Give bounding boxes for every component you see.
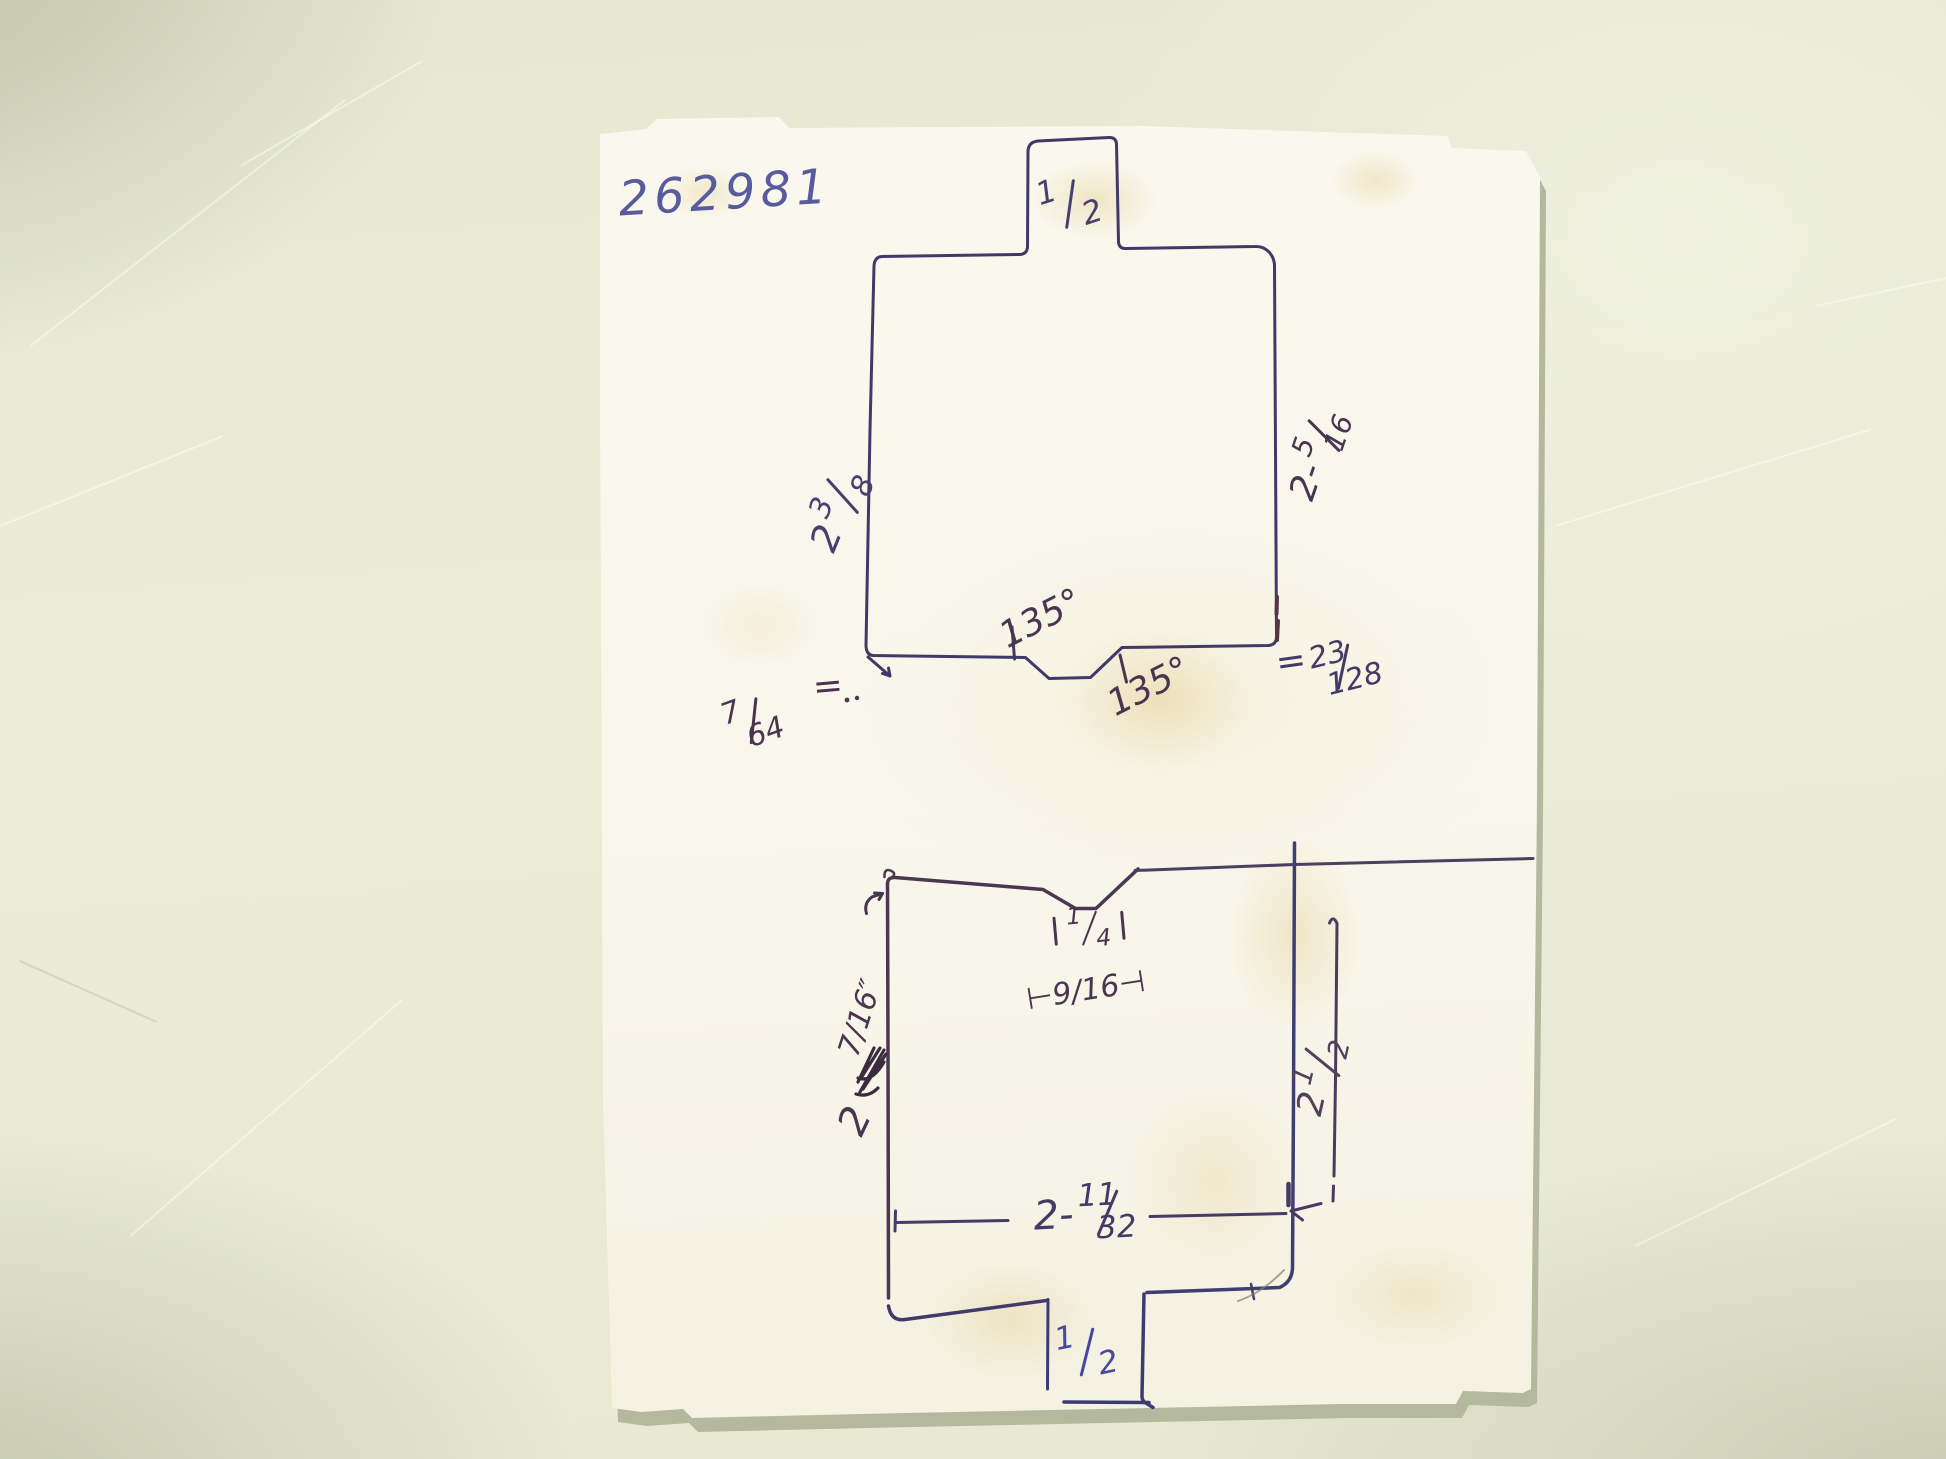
bottom-tab-right-side [1142, 1294, 1153, 1408]
right-equals-sign: = [1274, 642, 1309, 682]
bottom-tab-left-side [1048, 1300, 1049, 1390]
bottom-width-dimension: 2- 1132 [1032, 1184, 1138, 1243]
photo-of-hand-drawn-template-sketch: 262981 12 2 38 2- 516 135° 135° 764 = = … [0, 0, 1946, 1459]
right-gap-dimension: 23128 [1307, 633, 1386, 699]
bottom-edge-tick [1251, 1284, 1254, 1299]
width-dimension-arrow [1291, 1204, 1321, 1221]
left-approx-sign: = [811, 668, 844, 706]
ink-dot [845, 698, 850, 703]
pencil-curve [1238, 1270, 1284, 1301]
part-number: 262981 [617, 163, 833, 224]
corner-leader-arrow [866, 893, 883, 914]
notch-flat-dimension: 14 [1047, 904, 1131, 951]
bottom-shape-bottom-left [889, 1301, 1047, 1320]
ink-dot [855, 696, 859, 700]
bottom-tab-dimension: 12 [1053, 1320, 1121, 1385]
bottom-shape-right-and-bottom [1147, 843, 1295, 1293]
bottom-tab-bottom [1064, 1402, 1149, 1403]
top-shape-corner-hook [868, 657, 890, 676]
bottom-shape-corner-bump [884, 870, 894, 877]
long-construction-line [1135, 859, 1533, 871]
sketch-linework [0, 0, 1946, 1459]
